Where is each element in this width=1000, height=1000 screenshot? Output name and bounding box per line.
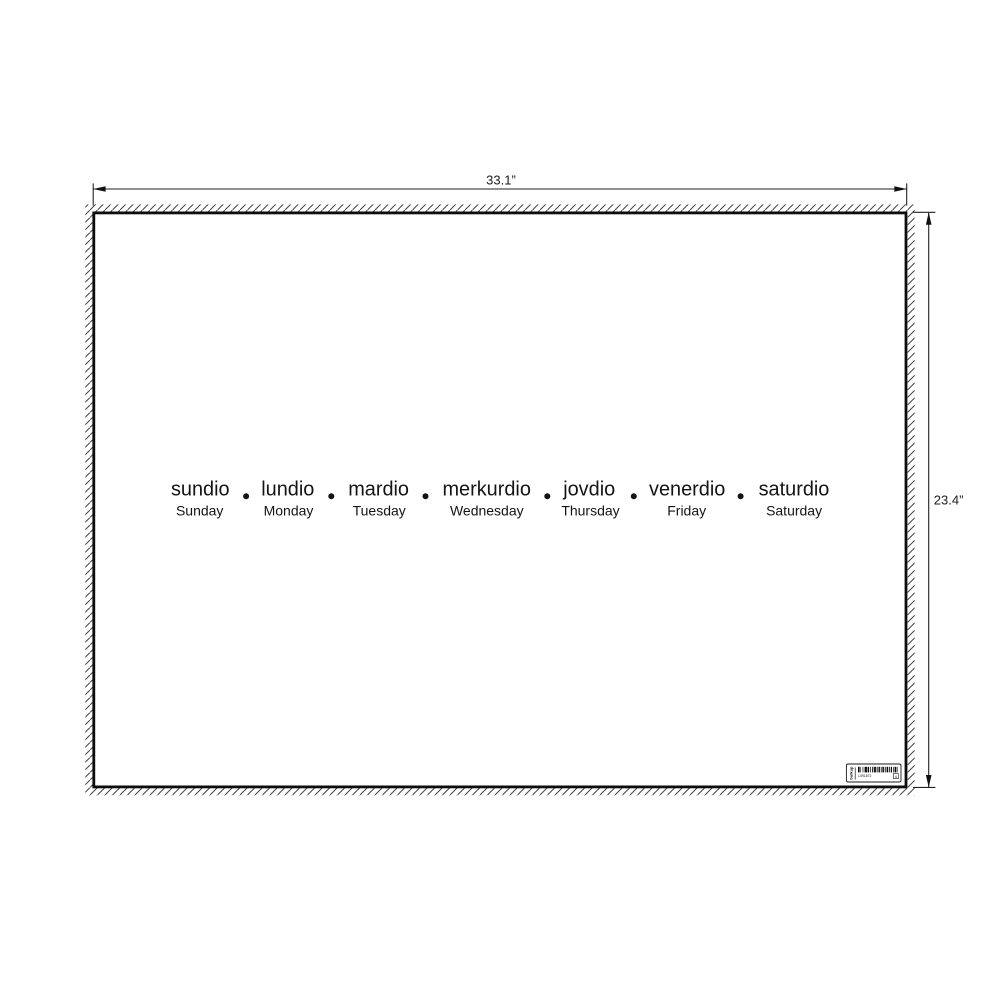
- svg-text:mardio: mardio: [348, 478, 409, 500]
- svg-text:4: 4: [895, 775, 897, 779]
- svg-text:merkurdio: merkurdio: [442, 478, 530, 500]
- svg-text:Tuesday: Tuesday: [353, 503, 406, 519]
- svg-text:Thursday: Thursday: [561, 503, 619, 519]
- svg-text:L091872: L091872: [858, 774, 871, 778]
- svg-text:saturdio: saturdio: [759, 478, 830, 500]
- svg-text:Monday: Monday: [264, 503, 314, 519]
- svg-text:Sunday: Sunday: [176, 503, 223, 519]
- svg-text:lundio: lundio: [261, 478, 314, 500]
- svg-text:23.4”: 23.4”: [934, 493, 964, 508]
- svg-text:jovdio: jovdio: [562, 478, 615, 500]
- svg-text:Saturday: Saturday: [766, 503, 822, 519]
- svg-text:bulkup: bulkup: [849, 766, 854, 780]
- svg-text:Friday: Friday: [667, 503, 706, 519]
- svg-text:Wednesday: Wednesday: [450, 503, 524, 519]
- svg-text:sundio: sundio: [171, 478, 230, 500]
- svg-text:venerdio: venerdio: [649, 478, 725, 500]
- svg-text:33.1”: 33.1”: [486, 173, 516, 188]
